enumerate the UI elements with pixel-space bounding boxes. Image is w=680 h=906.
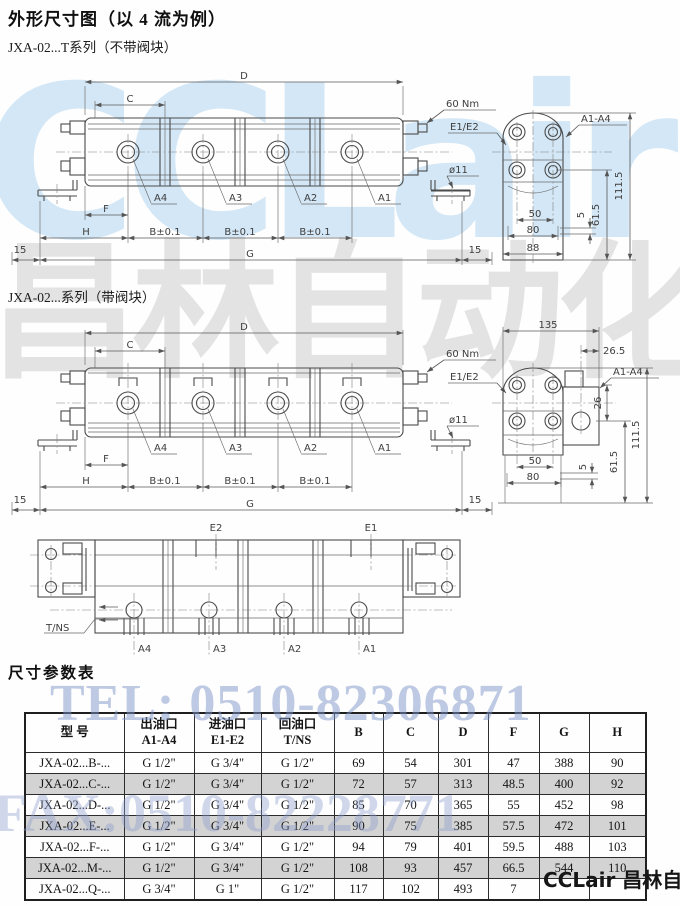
port-label-a2-2: A2 — [304, 443, 317, 454]
dim-B3-2: B±0.1 — [299, 476, 330, 487]
dim-50-2: 50 — [529, 456, 542, 467]
plan-label-a3: A3 — [213, 644, 226, 655]
cell-c: 70 — [383, 795, 438, 816]
divider-end-view — [492, 110, 612, 265]
dim-B1-2: B±0.1 — [149, 476, 180, 487]
cell-f: 57.5 — [488, 816, 539, 837]
dim-111-5: 111.5 — [614, 172, 625, 201]
plan-label-a4: A4 — [138, 644, 151, 655]
table-row: JXA-02...E-... G 1/2" G 3/4" G 1/2" 90 7… — [25, 816, 646, 837]
header-C: C — [383, 713, 438, 753]
cell-model: JXA-02...C-... — [25, 774, 124, 795]
table-section-title: 尺寸参数表 — [8, 661, 96, 683]
dim-D-2: D — [240, 322, 248, 333]
cell-outlet: G 1/2" — [124, 795, 194, 816]
cell-g: 488 — [539, 837, 589, 858]
cell-return: G 1/2" — [261, 753, 334, 774]
cell-inlet: G 3/4" — [194, 858, 261, 879]
end-plugs-2 — [61, 371, 427, 425]
dim-88: 88 — [527, 243, 540, 254]
cell-g: 472 — [539, 816, 589, 837]
cell-c: 54 — [383, 753, 438, 774]
cell-return: G 1/2" — [261, 858, 334, 879]
cell-b: 117 — [334, 879, 383, 901]
cell-g: 400 — [539, 774, 589, 795]
header-D: D — [438, 713, 488, 753]
port-label-a3: A3 — [229, 193, 242, 204]
dim-50: 50 — [529, 209, 542, 220]
table-header-row: 型 号 出油口A1-A4 进油口E1-E2 回油口T/NS B C D F G … — [25, 713, 646, 753]
cell-c: 75 — [383, 816, 438, 837]
cell-b: 69 — [334, 753, 383, 774]
label-a-ports: A1-A4 — [581, 114, 611, 125]
cell-return: G 1/2" — [261, 816, 334, 837]
cell-return: G 1/2" — [261, 774, 334, 795]
dim-dia11: ø11 — [449, 165, 468, 176]
dim-15-right-2: 15 — [469, 495, 482, 506]
cell-outlet: G 3/4" — [124, 879, 194, 901]
port-label-a1: A1 — [378, 193, 391, 204]
cell-outlet: G 1/2" — [124, 858, 194, 879]
dim-15-left: 15 — [14, 245, 27, 256]
cell-h: 92 — [589, 774, 646, 795]
dim-B2: B±0.1 — [224, 227, 255, 238]
cell-outlet: G 1/2" — [124, 753, 194, 774]
dim-61-5-2: 61.5 — [609, 451, 620, 473]
dim-H-2: H — [82, 476, 90, 487]
dim-B3: B±0.1 — [299, 227, 330, 238]
port-label-tns: T/NS — [45, 623, 69, 634]
figure-2-dimension-drawing: A4 A3 A2 A1 D C 60 Nm E1/E2 ø11 F H B±0.… — [0, 315, 680, 515]
dim-80-2: 80 — [527, 472, 540, 483]
port-label-a1-2: A1 — [378, 443, 391, 454]
cell-d: 313 — [438, 774, 488, 795]
dim-135: 135 — [538, 320, 557, 331]
cell-f: 7 — [488, 879, 539, 901]
cell-c: 93 — [383, 858, 438, 879]
port-label-a4-2: A4 — [154, 443, 167, 454]
port-label-a4: A4 — [154, 193, 167, 204]
dim-61-5: 61.5 — [591, 204, 602, 226]
figure-3-plan-view: E2 E1 T/NS A4 A3 A2 A1 — [0, 515, 680, 663]
cell-c: 57 — [383, 774, 438, 795]
table-row: JXA-02...F-... G 1/2" G 3/4" G 1/2" 94 7… — [25, 837, 646, 858]
label-e-ports: E1/E2 — [450, 122, 479, 133]
label-e-ports-2: E1/E2 — [450, 372, 479, 383]
cell-model: JXA-02...M-... — [25, 858, 124, 879]
cell-f: 66.5 — [488, 858, 539, 879]
cell-f: 48.5 — [488, 774, 539, 795]
cell-c: 79 — [383, 837, 438, 858]
cell-model: JXA-02...F-... — [25, 837, 124, 858]
cell-c: 102 — [383, 879, 438, 901]
cell-d: 385 — [438, 816, 488, 837]
port-label-a3-2: A3 — [229, 443, 242, 454]
header-F: F — [488, 713, 539, 753]
header-G: G — [539, 713, 589, 753]
dim-5-2: 5 — [578, 464, 589, 470]
cell-g: 452 — [539, 795, 589, 816]
header-return: 回油口T/NS — [261, 713, 334, 753]
table-row: JXA-02...C-... G 1/2" G 3/4" G 1/2" 72 5… — [25, 774, 646, 795]
cell-inlet: G 3/4" — [194, 837, 261, 858]
cell-inlet: G 3/4" — [194, 816, 261, 837]
dim-C: C — [127, 94, 134, 105]
cell-d: 493 — [438, 879, 488, 901]
dim-B1: B±0.1 — [149, 227, 180, 238]
cell-d: 301 — [438, 753, 488, 774]
watermark-footer-brand: CCLair 昌林自动化 — [543, 864, 680, 893]
header-inlet: 进油口E1-E2 — [194, 713, 261, 753]
plan-label-a1: A1 — [363, 644, 376, 655]
cell-b: 94 — [334, 837, 383, 858]
figure-2-subtitle: JXA-02...系列（带阀块） — [8, 286, 155, 306]
table-row: JXA-02...B-... G 1/2" G 3/4" G 1/2" 69 5… — [25, 753, 646, 774]
dim-15-left-2: 15 — [14, 495, 27, 506]
dim-G: G — [246, 249, 254, 260]
dim-26-5: 26.5 — [603, 346, 625, 357]
dim-15-right: 15 — [469, 245, 482, 256]
cell-model: JXA-02...Q-... — [25, 879, 124, 901]
dim-5: 5 — [576, 212, 587, 218]
dim-dia11-2: ø11 — [449, 415, 468, 426]
cell-f: 59.5 — [488, 837, 539, 858]
dim-B2-2: B±0.1 — [224, 476, 255, 487]
cell-outlet: G 1/2" — [124, 774, 194, 795]
cell-return: G 1/2" — [261, 837, 334, 858]
cell-d: 401 — [438, 837, 488, 858]
cell-d: 365 — [438, 795, 488, 816]
dim-C-2: C — [127, 340, 134, 351]
mounting-brackets — [38, 180, 470, 204]
plan-label-a2: A2 — [288, 644, 301, 655]
page-title: 外形尺寸图（以 4 流为例） — [8, 5, 226, 30]
dim-D: D — [240, 71, 248, 82]
cell-h: 98 — [589, 795, 646, 816]
cell-inlet: G 3/4" — [194, 795, 261, 816]
header-outlet: 出油口A1-A4 — [124, 713, 194, 753]
port-label-e2: E2 — [210, 523, 223, 534]
cell-h: 103 — [589, 837, 646, 858]
table-row: JXA-02...D-... G 1/2" G 3/4" G 1/2" 85 7… — [25, 795, 646, 816]
cell-h: 90 — [589, 753, 646, 774]
dim-F-2: F — [103, 454, 109, 465]
dim-torque-2: 60 Nm — [446, 349, 479, 360]
mounting-plate-left — [38, 540, 95, 597]
dim-F: F — [103, 204, 109, 215]
cell-g: 388 — [539, 753, 589, 774]
label-a-ports-2: A1-A4 — [613, 367, 643, 378]
cell-f: 47 — [488, 753, 539, 774]
dim-26: 26 — [593, 397, 604, 410]
figure-1-subtitle: JXA-02...T系列（不带阀块） — [8, 36, 177, 56]
header-H: H — [589, 713, 646, 753]
cell-inlet: G 3/4" — [194, 753, 261, 774]
cell-model: JXA-02...E-... — [25, 816, 124, 837]
cell-outlet: G 1/2" — [124, 816, 194, 837]
cell-model: JXA-02...D-... — [25, 795, 124, 816]
cell-return: G 1/2" — [261, 879, 334, 901]
port-label-e1: E1 — [365, 523, 378, 534]
cell-inlet: G 3/4" — [194, 774, 261, 795]
figure-1-dimension-drawing: A4 A3 A2 A1 D C 60 Nm E1/E2 ø11 F H B±0.… — [0, 60, 680, 285]
header-model: 型 号 — [25, 713, 124, 753]
dim-H: H — [82, 227, 90, 238]
header-B: B — [334, 713, 383, 753]
cell-model: JXA-02...B-... — [25, 753, 124, 774]
cell-b: 72 — [334, 774, 383, 795]
cell-outlet: G 1/2" — [124, 837, 194, 858]
dim-torque: 60 Nm — [446, 99, 479, 110]
cell-return: G 1/2" — [261, 795, 334, 816]
cell-b: 108 — [334, 858, 383, 879]
port-label-a2: A2 — [304, 193, 317, 204]
mounting-brackets-2 — [38, 430, 470, 454]
cell-f: 55 — [488, 795, 539, 816]
dim-80: 80 — [527, 225, 540, 236]
cell-b: 90 — [334, 816, 383, 837]
cell-inlet: G 1" — [194, 879, 261, 901]
catalog-page: { "page": { "title": "外形尺寸图（以 4 流为例）", "… — [0, 0, 680, 906]
cell-d: 457 — [438, 858, 488, 879]
cell-h: 101 — [589, 816, 646, 837]
dim-G-2: G — [246, 499, 254, 510]
cell-b: 85 — [334, 795, 383, 816]
divider-body-plan-view — [95, 540, 403, 633]
dim-111-5-2: 111.5 — [631, 421, 642, 450]
mounting-plate-right — [403, 540, 460, 597]
